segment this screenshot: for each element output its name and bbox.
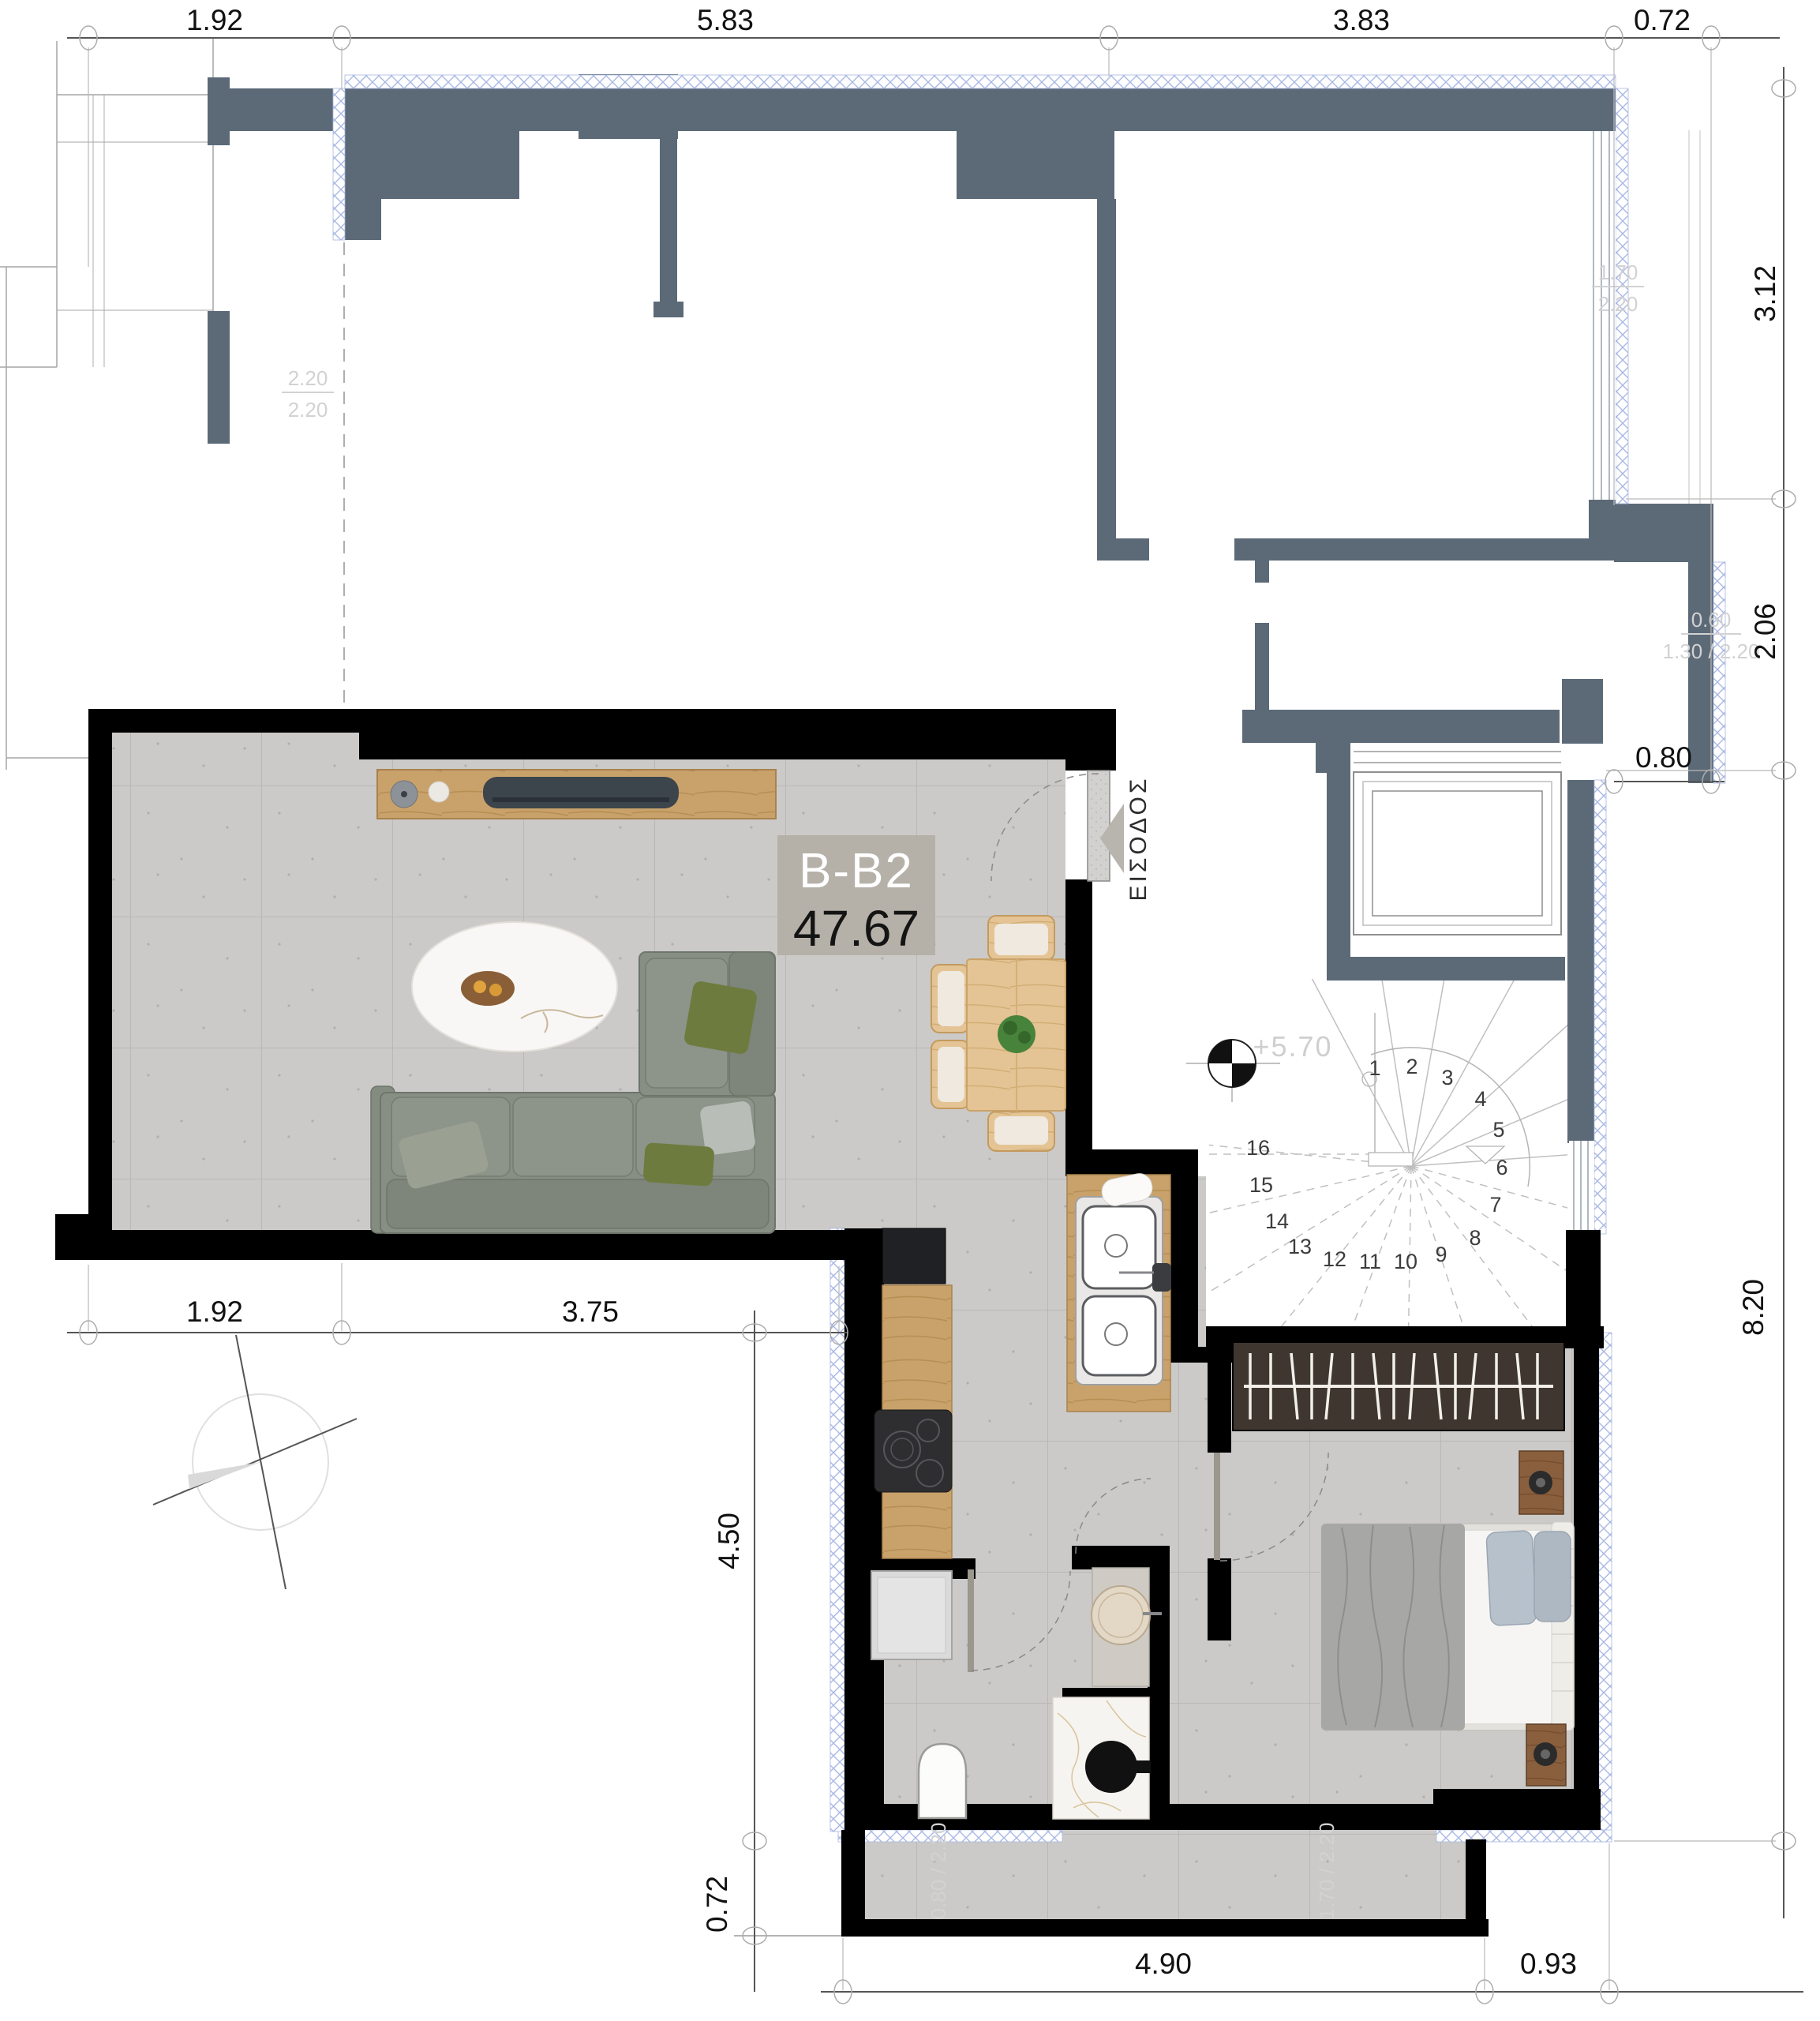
dim-right-2: 2.06: [1749, 603, 1781, 660]
wall-corridor: [1242, 710, 1560, 743]
step-number: 1: [1369, 1056, 1380, 1080]
step-number: 11: [1359, 1250, 1381, 1273]
wall-pier: [957, 131, 1114, 199]
terrace-floor: [112, 733, 359, 1232]
dim-right-4: 8.20: [1737, 1279, 1769, 1336]
bedroom-door-leaf: [1214, 1453, 1220, 1560]
wall-terrace-top: [88, 709, 363, 733]
door-size: 0.80 / 2.20: [927, 1823, 950, 1920]
toilet: [919, 1744, 966, 1818]
step-number: 12: [1323, 1247, 1346, 1271]
dim-top-2: 5.83: [697, 4, 754, 36]
step-number: 4: [1474, 1087, 1486, 1111]
wall-top: [212, 88, 1616, 131]
compass-mark: [153, 1335, 357, 1589]
wall-partition: [660, 139, 677, 302]
pillow: [1534, 1532, 1571, 1622]
tv-console: [377, 770, 776, 819]
wall-kitchen-left: [844, 1228, 884, 1830]
pillow: [1486, 1531, 1537, 1626]
unit-area: 47.67: [793, 900, 919, 957]
wall-elevator-left: [1327, 742, 1350, 958]
wall-kitchen-right: [1168, 1176, 1198, 1358]
elevator-shaft: [1354, 772, 1561, 935]
step-number: 10: [1394, 1250, 1417, 1273]
wall-entry-side: [1065, 879, 1092, 1153]
throw-blanket: [1321, 1524, 1465, 1730]
coffee-table: [412, 922, 617, 1052]
step-number: 8: [1469, 1226, 1481, 1250]
window-size: 1.70: [1598, 261, 1638, 284]
wall-living-top: [359, 709, 1067, 759]
dim-bottom-2: 0.93: [1520, 1948, 1577, 1980]
entrance-label: ΕΙΣΟΔΟΣ: [1125, 776, 1152, 902]
tv: [483, 777, 679, 808]
step-number: 6: [1496, 1156, 1507, 1179]
entrance-door-leaf: [1088, 771, 1110, 881]
step-number: 2: [1406, 1055, 1417, 1078]
wall-stair-right: [1567, 780, 1594, 1143]
step-number: 7: [1489, 1193, 1501, 1217]
wall-pier: [380, 131, 519, 199]
floor-plan-canvas: 1 2 3 4 5 6 7 8 9 10 11 12 13 14 15 16 +…: [0, 0, 1820, 2021]
dim-right-1: 3.12: [1749, 265, 1781, 322]
dim-right-3: 0.80: [1635, 741, 1692, 774]
step-number: 9: [1435, 1243, 1447, 1266]
wall-terrace-left: [88, 709, 112, 1260]
sink-basin: [1083, 1296, 1155, 1375]
wall-bedroom-right: [1574, 1333, 1599, 1830]
unit-name: B-B2: [799, 844, 914, 898]
shower-door-leaf: [968, 1569, 974, 1672]
window-size: 1.70 / 2.20: [1315, 1823, 1339, 1920]
step-number: 16: [1246, 1136, 1270, 1160]
wall-bathroom-right: [1148, 1546, 1170, 1830]
stair-center-landing: [1369, 1153, 1413, 1166]
dim-top-4: 0.72: [1634, 4, 1691, 36]
window-size: 2.20: [1598, 292, 1638, 316]
step-number: 14: [1265, 1209, 1289, 1233]
floor-plan-drawing: 1 2 3 4 5 6 7 8 9 10 11 12 13 14 15 16 +…: [0, 0, 1820, 2021]
faucet-icon: [1152, 1263, 1171, 1292]
wall-building-bottom: [841, 1919, 1489, 1937]
sink-basin: [1083, 1206, 1155, 1288]
dim-bottom-1: 4.90: [1135, 1948, 1192, 1980]
step-number: 3: [1441, 1066, 1453, 1089]
step-number: 5: [1492, 1118, 1504, 1142]
window-size: 2.20: [288, 398, 328, 422]
fridge: [882, 1228, 946, 1284]
dim-mid-2: 3.75: [562, 1295, 619, 1328]
elevator: [1354, 752, 1561, 935]
lower-strip-floor: [865, 1830, 1467, 1921]
step-number: 15: [1249, 1173, 1273, 1197]
pillow-green: [683, 981, 758, 1055]
wardrobe: [1233, 1342, 1564, 1430]
window-size: 2.20: [288, 366, 328, 390]
vessel-sink: [1092, 1586, 1150, 1644]
wall-elevator-bottom: [1327, 957, 1565, 981]
decor-plate: [429, 782, 449, 802]
level-value: +5.70: [1253, 1030, 1332, 1063]
wall-corridor: [1234, 538, 1615, 561]
fruit-bowl: [461, 971, 515, 1006]
dim-top-3: 3.83: [1333, 4, 1390, 36]
wall-living-bottom: [55, 1230, 884, 1260]
dim-vert-1: 4.50: [713, 1513, 745, 1569]
window-stairwell: [1569, 1141, 1594, 1234]
step-number: 13: [1288, 1235, 1312, 1258]
dim-mid-1: 1.92: [186, 1295, 243, 1328]
unit-label: B-B2 47.67: [777, 835, 935, 957]
basin-drain: [1085, 1741, 1137, 1793]
dim-vert-2: 0.72: [701, 1876, 733, 1933]
pillow-green: [642, 1142, 714, 1187]
dim-top-1: 1.92: [186, 4, 243, 36]
